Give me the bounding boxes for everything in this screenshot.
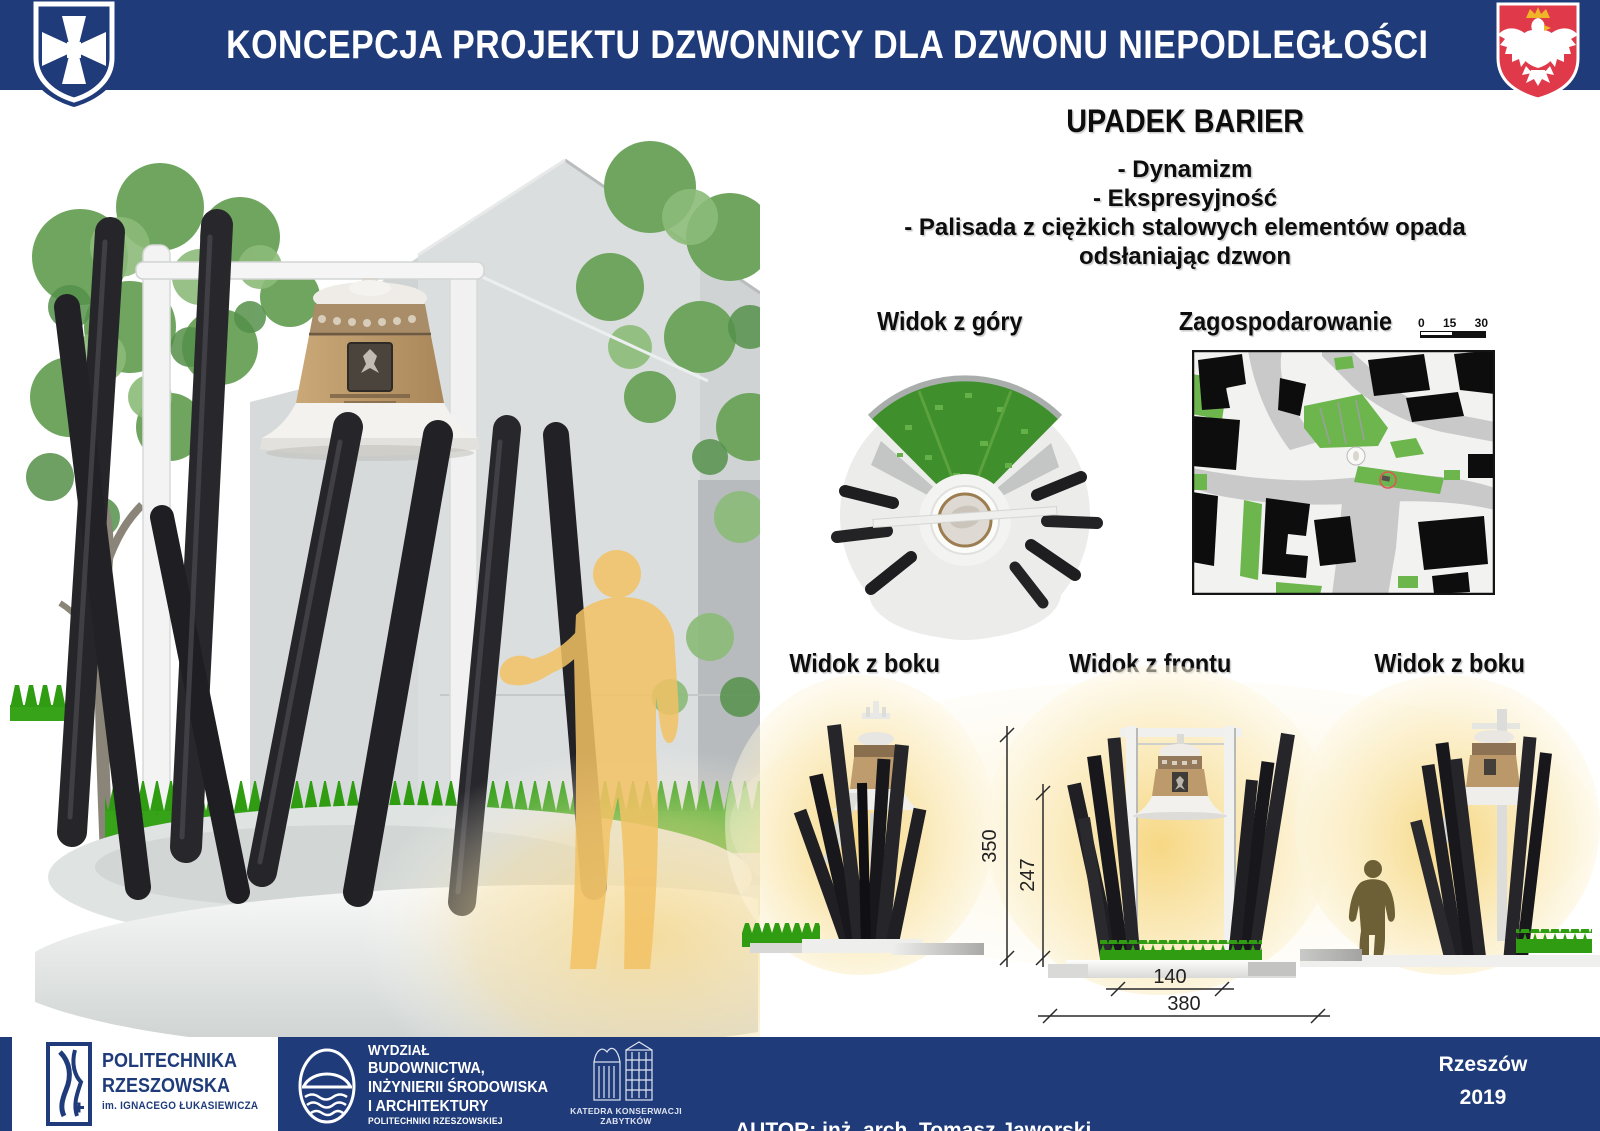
side-elevation-render-2: [1300, 693, 1600, 968]
main-perspective-render: [10, 97, 760, 1037]
dimension-frame-height: 247: [1017, 858, 1039, 891]
bullet-line: - Palisada z ciężkich stalowych elementó…: [770, 213, 1600, 242]
bullet-line: - Ekspresyjność: [770, 184, 1600, 213]
concept-heading: UPADEK BARIER: [770, 103, 1600, 140]
bullet-line: odsłaniając dzwon: [770, 242, 1600, 271]
site-plan-map: [1192, 350, 1495, 595]
credits-block: AUTOR: inż. arch. Tomasz Jaworski PROMOT…: [735, 1048, 1246, 1131]
scale-bar-segment-dark: [1453, 331, 1486, 338]
dimension-total-height: 350: [979, 829, 1001, 862]
scale-bar-segment-light: [1420, 331, 1453, 338]
politechnika-rzeszowska-logo-icon: [46, 1042, 92, 1126]
page-title: KONCEPCJA PROJEKTU DZWONNICY DLA DZWONU …: [120, 23, 1480, 68]
place-year-block: Rzeszów 2019: [1408, 1048, 1558, 1114]
poland-eagle-icon: [1492, 2, 1584, 104]
faculty-logo-icon: [296, 1046, 358, 1126]
rzeszow-crest-icon: [26, 0, 122, 110]
heritage-department-logo-icon: [586, 1040, 664, 1104]
city-label: Rzeszów: [1408, 1048, 1558, 1081]
top-view-render: [815, 345, 1115, 640]
presentation-board: KONCEPCJA PROJEKTU DZWONNICY DLA DZWONU …: [0, 0, 1600, 1131]
faculty-name: WYDZIAŁ BUDOWNICTWA, INŻYNIERII ŚRODOWIS…: [368, 1042, 568, 1128]
concept-bullets: - Dynamizm - Ekspresyjność - Palisada z …: [770, 155, 1600, 271]
bullet-line: - Dynamizm: [770, 155, 1600, 184]
scale-tick: 15: [1443, 316, 1456, 330]
site-plan-label: Zagospodarowanie: [1155, 306, 1415, 337]
map-scale-bar: 0 15 30: [1418, 316, 1488, 338]
dimension-inner-width: 140: [1153, 966, 1186, 988]
department-name: KATEDRA KONSERWACJI ZABYTKÓW: [556, 1106, 696, 1126]
top-view-label: Widok z góry: [820, 306, 1080, 337]
author-line: AUTOR: inż. arch. Tomasz Jaworski: [735, 1114, 1246, 1131]
university-name: POLITECHNIKA RZESZOWSKA im. IGNACEGO ŁUK…: [102, 1049, 276, 1114]
scale-tick: 0: [1418, 316, 1425, 330]
dimension-lines: 350 247 140 380: [950, 688, 1340, 1038]
scale-tick: 30: [1475, 316, 1488, 330]
dimension-total-width: 380: [1167, 993, 1200, 1015]
year-label: 2019: [1408, 1081, 1558, 1114]
